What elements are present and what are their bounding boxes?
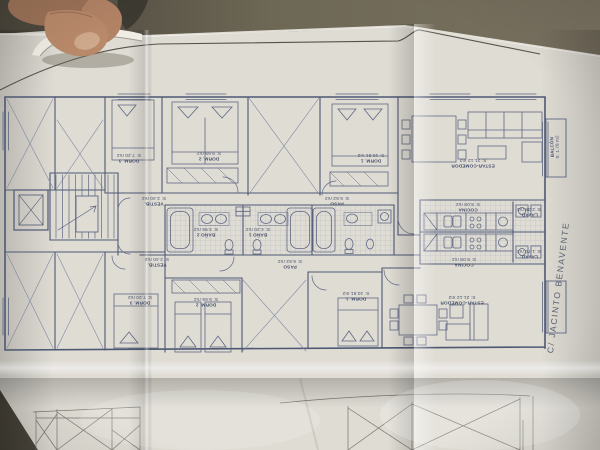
- photo-graphics: [0, 0, 600, 450]
- vignette: [0, 0, 600, 450]
- floorplan-photo: DORM. 3 S: 7.20 m2 DORM. 2 S: 9.65 m2 DO…: [0, 0, 600, 450]
